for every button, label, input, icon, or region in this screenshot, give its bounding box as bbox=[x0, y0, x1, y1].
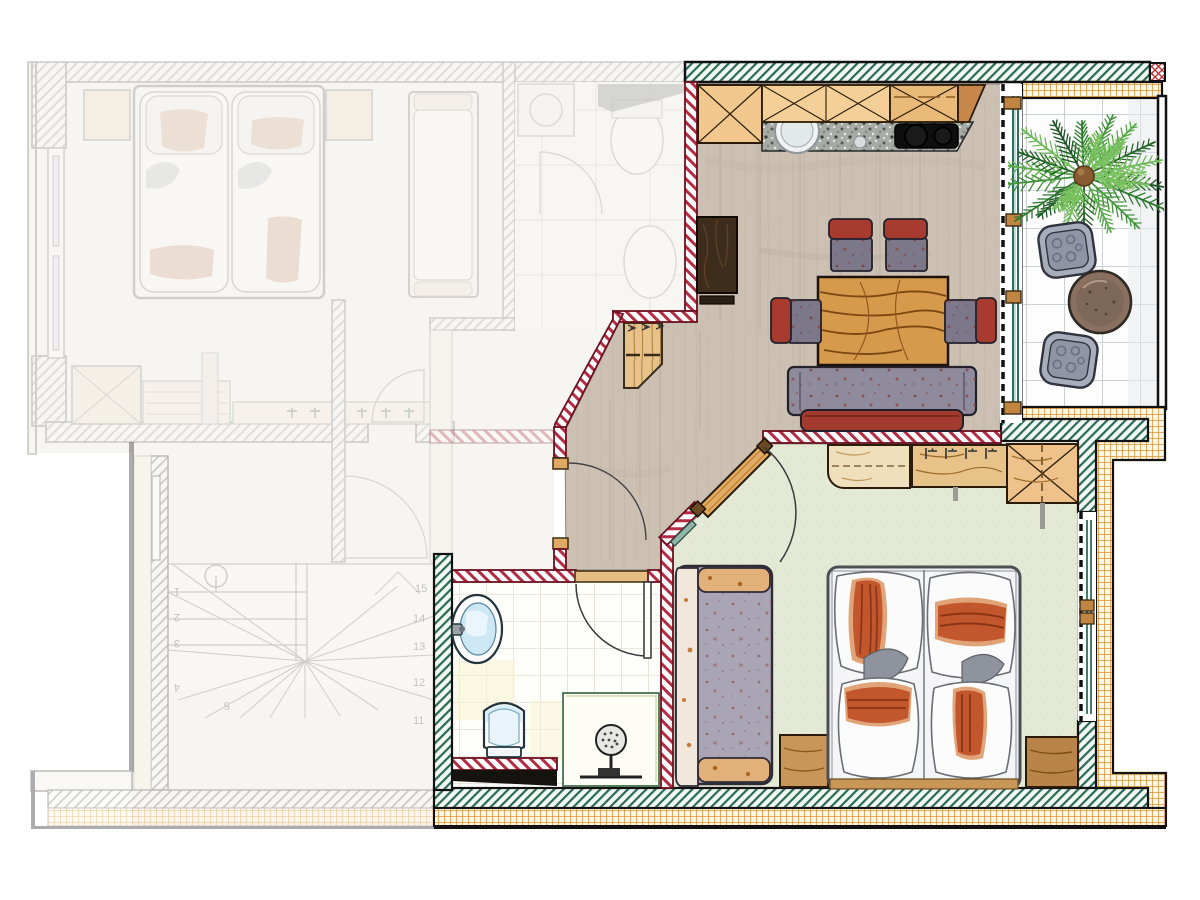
svg-text:14: 14 bbox=[413, 613, 425, 625]
svg-text:3: 3 bbox=[174, 637, 180, 649]
svg-text:13: 13 bbox=[413, 641, 425, 653]
svg-text:12: 12 bbox=[413, 677, 425, 689]
svg-text:5: 5 bbox=[224, 699, 230, 711]
svg-text:2: 2 bbox=[174, 611, 180, 623]
svg-text:1: 1 bbox=[174, 585, 180, 597]
svg-text:4: 4 bbox=[174, 681, 180, 693]
svg-text:15: 15 bbox=[415, 583, 427, 595]
svg-text:11: 11 bbox=[413, 715, 424, 727]
